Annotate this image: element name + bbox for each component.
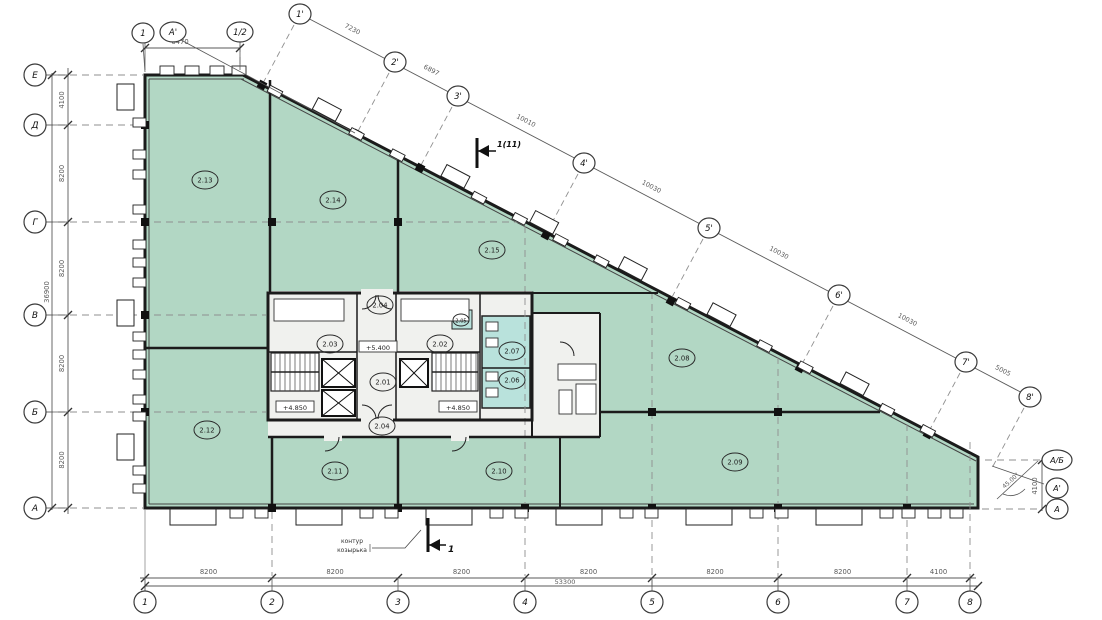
window-west xyxy=(133,150,146,159)
window-west xyxy=(133,466,146,475)
floor-plan-canvas: +5.400+4.850+4.8502.012.022.032.042.042.… xyxy=(0,0,1102,620)
axis-label: 2' xyxy=(391,58,399,68)
dim-label: 8200 xyxy=(58,260,66,277)
dim-label: 10010 xyxy=(515,112,537,129)
room-number: 2.04 xyxy=(374,423,389,431)
section-label: 1 xyxy=(448,545,454,555)
room-number: 2.10 xyxy=(491,468,506,476)
window-west xyxy=(133,332,146,341)
dim-label: 8200 xyxy=(200,568,217,576)
window-west xyxy=(133,258,146,267)
bay-south xyxy=(170,509,216,525)
window-west xyxy=(133,350,146,359)
window-south xyxy=(750,509,763,518)
axis-label: А' xyxy=(1052,484,1061,493)
room-number: 2.05 xyxy=(455,319,466,325)
bay-south xyxy=(296,509,342,525)
axis-label: А xyxy=(1053,505,1059,514)
axis-label: Е xyxy=(32,71,38,81)
room-number: 2.02 xyxy=(432,341,447,349)
bay-south xyxy=(816,509,862,525)
axis-label: А xyxy=(31,504,38,514)
window-north xyxy=(210,66,224,75)
axis-label: 6' xyxy=(835,291,843,301)
window-south xyxy=(620,509,633,518)
window-south xyxy=(490,509,503,518)
axis-label: 4 xyxy=(522,598,528,608)
room-number: 2.12 xyxy=(199,427,214,435)
dim-label: 5005 xyxy=(994,363,1012,378)
fixture xyxy=(486,338,498,347)
bay-west xyxy=(117,434,134,460)
axis-label: 1/2 xyxy=(233,28,247,38)
fixture xyxy=(486,322,498,331)
window-north xyxy=(160,66,174,75)
axis-label: 7 xyxy=(904,598,910,608)
axis-label: 2 xyxy=(269,598,275,608)
prime-leader xyxy=(420,107,452,167)
window-south xyxy=(902,509,915,518)
window-west xyxy=(133,205,146,214)
window-south xyxy=(230,509,243,518)
window-north xyxy=(185,66,199,75)
room-number: 2.09 xyxy=(727,459,742,467)
bay-west xyxy=(117,300,134,326)
dim-label: 8200 xyxy=(326,568,343,576)
window-south xyxy=(515,509,528,518)
floor-plan-drawing: +5.400+4.850+4.8502.012.022.032.042.042.… xyxy=(0,0,1102,620)
dim-total-label: 36900 xyxy=(43,281,51,303)
column xyxy=(268,504,276,512)
dim-label: 4100 xyxy=(930,568,947,576)
axis-label: 5 xyxy=(649,598,655,608)
axis-leader xyxy=(992,466,1044,484)
window-west xyxy=(133,412,146,421)
axis-label: Д xyxy=(30,121,38,131)
dim-label: 10030 xyxy=(640,178,662,195)
axis-label: 4' xyxy=(580,159,588,169)
window-west xyxy=(133,395,146,404)
note-text: козырька xyxy=(337,547,367,554)
window-south xyxy=(775,509,788,518)
fixture xyxy=(576,384,596,414)
window-south xyxy=(950,509,963,518)
bay-south xyxy=(426,509,472,525)
room-number: 2.07 xyxy=(504,348,519,356)
axis-label: 6 xyxy=(775,598,781,608)
axis-label: 1 xyxy=(140,29,145,39)
window-south xyxy=(360,509,373,518)
window-west xyxy=(133,170,146,179)
room-number: 2.08 xyxy=(674,355,689,363)
dim-label: 8200 xyxy=(58,451,66,468)
window-west xyxy=(133,370,146,379)
section-arrow xyxy=(478,145,489,157)
angle-label: 45.00° xyxy=(1001,472,1021,491)
room-number: 2.13 xyxy=(197,177,212,185)
room-number: 2.03 xyxy=(322,341,337,349)
axis-label: 8 xyxy=(967,598,973,608)
level-label: +5.400 xyxy=(366,344,390,352)
column xyxy=(394,218,402,226)
prime-leader xyxy=(992,408,1024,468)
window-south xyxy=(255,509,268,518)
prime-leader xyxy=(928,373,960,433)
axis-label: 1 xyxy=(142,598,148,608)
dim-label: 8200 xyxy=(453,568,470,576)
dim-label: 8200 xyxy=(706,568,723,576)
bay-south xyxy=(686,509,732,525)
prime-leader xyxy=(801,306,833,366)
room-number: 2.01 xyxy=(375,379,390,387)
note-text: контур xyxy=(341,538,363,545)
fixture xyxy=(274,299,344,321)
dim-label: 8200 xyxy=(834,568,851,576)
room-number: 2.15 xyxy=(484,247,499,255)
dim-label: 8200 xyxy=(580,568,597,576)
prime-leader xyxy=(357,73,389,133)
axis-label: В xyxy=(32,311,38,321)
axis-label: 7' xyxy=(962,358,970,368)
window-south xyxy=(385,509,398,518)
dim-total-label: 53300 xyxy=(555,578,576,586)
axis-label: А/Б xyxy=(1049,456,1064,465)
column xyxy=(774,408,782,416)
window-south xyxy=(880,509,893,518)
note-leader xyxy=(372,530,421,548)
dim-label: 4100 xyxy=(58,91,66,108)
section-arrow xyxy=(429,539,440,551)
room-number: 2.11 xyxy=(327,468,342,476)
dim-label: 6897 xyxy=(422,63,440,78)
window-south xyxy=(645,509,658,518)
bay-west xyxy=(117,84,134,110)
fixture xyxy=(559,390,572,414)
axis-label: 5' xyxy=(705,224,713,234)
prime-leader xyxy=(262,25,294,85)
dim-label: 8200 xyxy=(58,355,66,372)
dim-label: 10030 xyxy=(896,311,918,328)
window-west xyxy=(133,118,146,127)
dim-label: 7230 xyxy=(343,22,361,37)
axis-label: 3 xyxy=(395,598,401,608)
dim-label: 8200 xyxy=(58,165,66,182)
fixture xyxy=(486,388,498,397)
level-label: +4.850 xyxy=(446,404,470,412)
bay-south xyxy=(556,509,602,525)
window-west xyxy=(133,240,146,249)
axis-label: А' xyxy=(168,28,177,38)
level-label: +4.850 xyxy=(283,404,307,412)
axis-label: 3' xyxy=(454,92,462,102)
window-west xyxy=(133,278,146,287)
window-south xyxy=(928,509,941,518)
fixture xyxy=(558,364,596,380)
fixture xyxy=(486,372,498,381)
room-number: 2.04 xyxy=(372,302,387,310)
room-number: 2.14 xyxy=(325,197,340,205)
axis-label: 1' xyxy=(296,10,304,20)
prime-leader xyxy=(671,239,703,299)
column xyxy=(268,218,276,226)
room-number: 2.06 xyxy=(504,377,519,385)
column xyxy=(648,408,656,416)
section-label: 1(11) xyxy=(497,140,521,149)
window-west xyxy=(133,484,146,493)
axis-label: Б xyxy=(32,408,38,418)
column xyxy=(141,218,149,226)
column xyxy=(141,311,149,319)
dim-label: 10030 xyxy=(768,244,790,261)
axis-label: 8' xyxy=(1026,393,1034,403)
